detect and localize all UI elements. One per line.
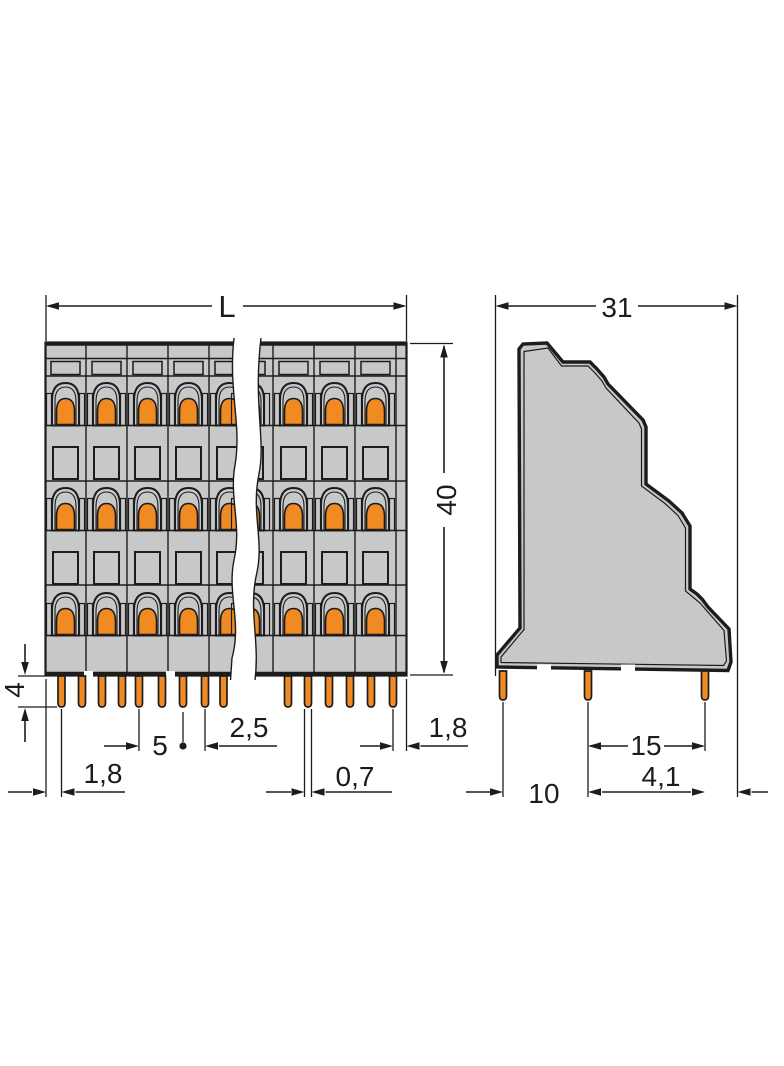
push-button [180,504,198,530]
dimension-arrowhead [440,345,448,358]
push-button [139,399,157,425]
dim-label-pin-length: 4 [0,682,30,698]
dimension-arrowhead [692,742,705,750]
push-button [285,609,303,635]
push-button [98,399,116,425]
terminal-block-dimension-drawing: L 40 4 1,8 5 2,5 0,7 1,8 31 15 4,1 10 [0,0,784,1066]
dimension-arrowhead [588,788,601,796]
solder-pin [585,671,592,700]
push-button [139,609,157,635]
dimension-arrowhead [21,662,29,675]
dim-label-last-pin-to-edge: 1,8 [429,712,468,743]
dimension-arrowhead [496,302,509,310]
solder-pin [58,676,65,707]
dimension-arrowhead [440,661,448,674]
solder-pin [99,676,106,707]
push-button [98,609,116,635]
solder-pin [136,676,143,707]
solder-pin [326,676,333,707]
solder-pin [79,676,86,707]
solder-pin [285,676,292,707]
push-button [98,504,116,530]
dim-label-pin-row-spacing: 15 [630,730,661,761]
side-bottom-notch [621,665,635,672]
side-view [497,343,731,700]
push-button [367,399,385,425]
dimension-arrowhead [292,788,305,796]
push-button [57,609,75,635]
dimension-arrowhead [725,302,738,310]
dimension-arrowhead [490,788,503,796]
push-button [285,399,303,425]
dimension-dot [179,742,186,749]
solder-pin [202,676,209,707]
dimension-arrowhead [588,742,601,750]
technical-drawing-page: L 40 4 1,8 5 2,5 0,7 1,8 31 15 4,1 10 [0,0,784,1066]
solder-pin [390,676,397,707]
dimension-arrowhead [312,788,325,796]
side-bottom-notch [537,665,551,672]
front-view [45,343,407,708]
dim-label-edge-to-first-pin: 1,8 [84,758,123,789]
solder-pin [702,671,709,700]
side-profile [497,343,731,671]
push-button [326,399,344,425]
solder-pin [159,676,166,707]
solder-pin [500,671,507,700]
solder-pin [119,676,126,707]
dimension-arrowhead [205,742,218,750]
solder-pin [180,676,187,707]
dimension-arrowhead [62,788,75,796]
push-button [367,609,385,635]
dim-label-pole-pitch: 5 [152,730,168,761]
dimension-arrowhead [46,302,59,310]
push-button [57,399,75,425]
dim-label-pin-width: 0,7 [336,761,375,792]
solder-pin [347,676,354,707]
push-button [180,399,198,425]
push-button [326,504,344,530]
push-button [180,609,198,635]
dim-label-first-pin-offset: 10 [528,778,559,809]
dimension-arrowhead [380,742,393,750]
push-button [57,504,75,530]
dimension-arrowhead [394,302,407,310]
dim-label-length: L [218,289,235,324]
bottom-edge-notch [166,671,175,678]
dimension-arrowhead [126,742,139,750]
solder-pin [305,676,312,707]
dimension-arrowhead [692,788,705,796]
dimension-arrowhead [738,788,751,796]
dimension-arrowhead [33,788,46,796]
dim-label-height: 40 [431,484,462,515]
dim-label-depth: 31 [601,292,632,323]
push-button [367,504,385,530]
dimension-arrowhead [21,708,29,721]
dimension-arrowhead [407,742,420,750]
solder-pin [220,676,227,707]
dim-label-pin-pair-spacing: 2,5 [230,712,269,743]
dim-label-pin-to-edge: 4,1 [642,761,681,792]
push-button [139,504,157,530]
push-button [285,504,303,530]
push-button [326,609,344,635]
solder-pin [368,676,375,707]
